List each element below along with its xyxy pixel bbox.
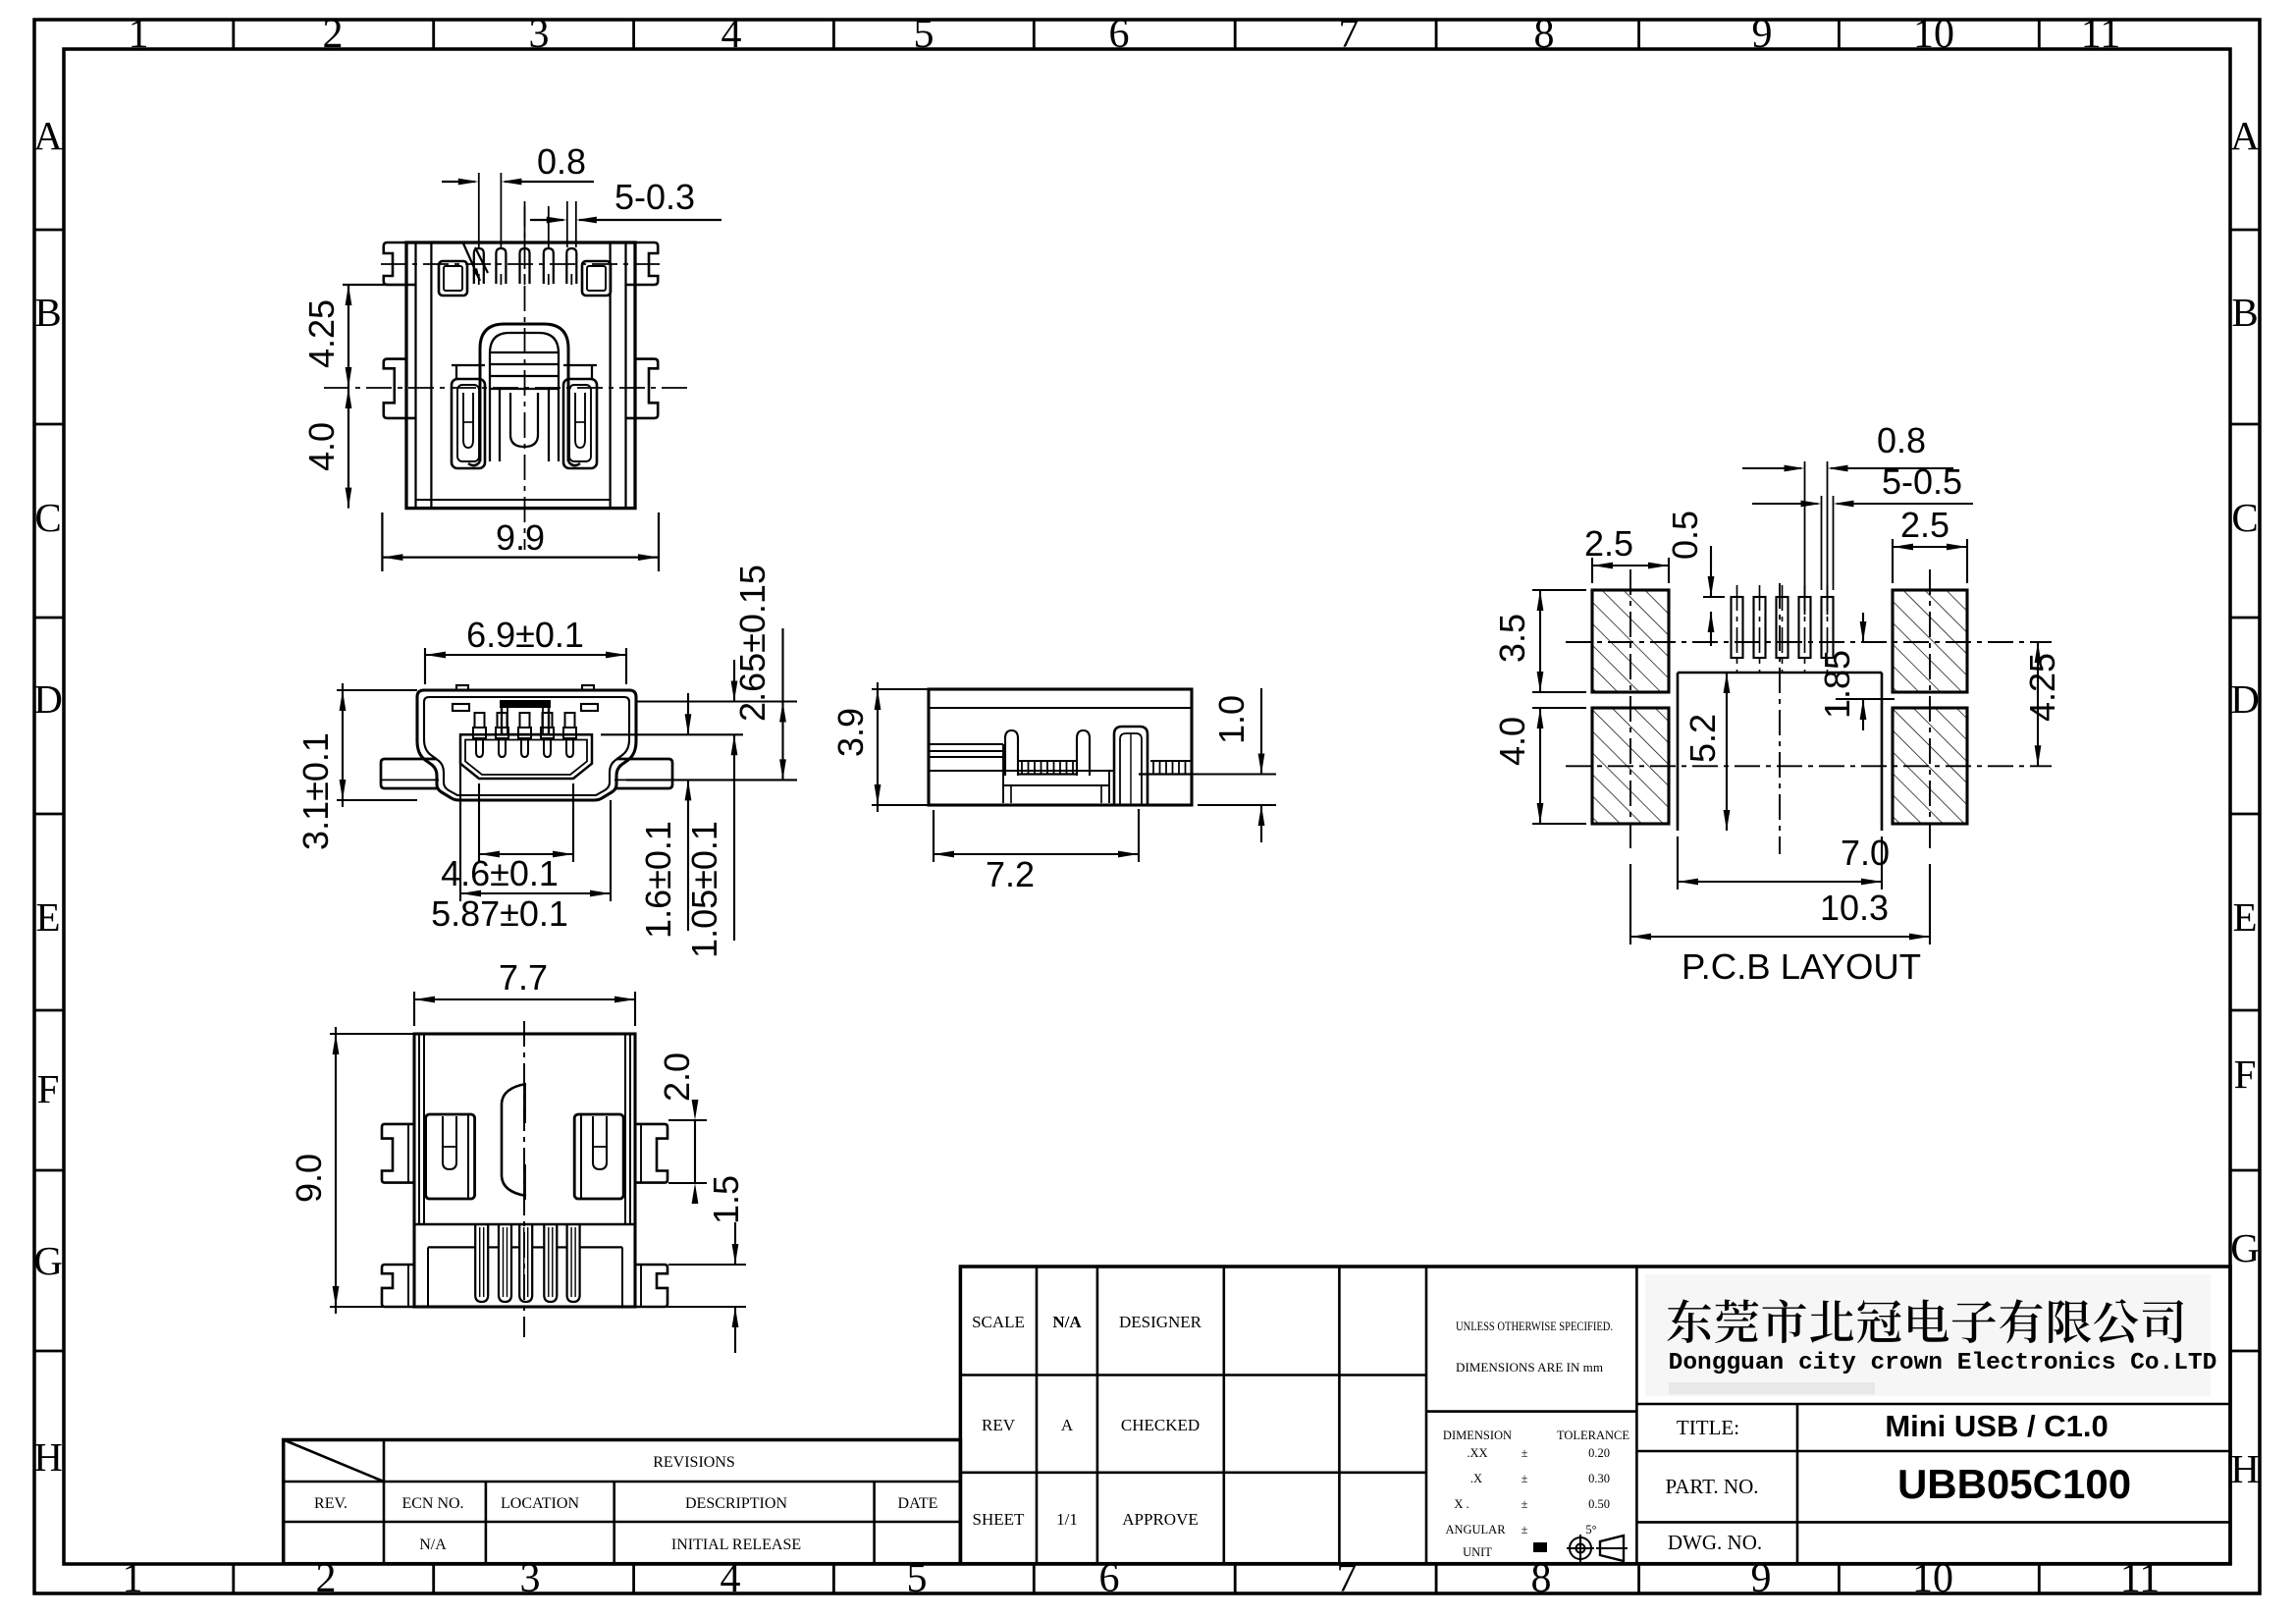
svg-text:8: 8 bbox=[1534, 12, 1555, 57]
svg-text:F: F bbox=[37, 1066, 60, 1111]
svg-text:DWG. NO.: DWG. NO. bbox=[1668, 1531, 1762, 1554]
svg-text:A: A bbox=[1061, 1416, 1074, 1434]
svg-text:APPROVE: APPROVE bbox=[1122, 1510, 1198, 1529]
svg-text:A: A bbox=[2230, 113, 2260, 158]
svg-text:7.7: 7.7 bbox=[499, 957, 548, 998]
svg-text:0.30: 0.30 bbox=[1588, 1472, 1610, 1485]
svg-text:4.25: 4.25 bbox=[2022, 653, 2062, 722]
svg-text:3.9: 3.9 bbox=[830, 708, 871, 757]
svg-text:D: D bbox=[33, 676, 63, 722]
svg-text:DESIGNER: DESIGNER bbox=[1119, 1313, 1202, 1331]
svg-text:TOLERANCE: TOLERANCE bbox=[1557, 1429, 1629, 1442]
svg-text:DESCRIPTION: DESCRIPTION bbox=[685, 1495, 787, 1512]
svg-text:C: C bbox=[34, 495, 61, 540]
svg-text:CHECKED: CHECKED bbox=[1121, 1416, 1200, 1434]
svg-text:SHEET: SHEET bbox=[973, 1510, 1026, 1529]
svg-text:7.0: 7.0 bbox=[1841, 833, 1890, 873]
svg-text:DATE: DATE bbox=[898, 1495, 938, 1512]
svg-text:LOCATION: LOCATION bbox=[501, 1495, 579, 1512]
svg-text:3.5: 3.5 bbox=[1492, 614, 1532, 663]
svg-text:UBB05C100: UBB05C100 bbox=[1897, 1461, 2131, 1507]
svg-text:4.0: 4.0 bbox=[301, 422, 342, 471]
svg-text:1.5: 1.5 bbox=[706, 1175, 746, 1224]
svg-text:G: G bbox=[33, 1238, 63, 1283]
svg-text:N/A: N/A bbox=[1052, 1313, 1082, 1331]
svg-text:F: F bbox=[2234, 1052, 2257, 1097]
svg-text:N/A: N/A bbox=[419, 1537, 447, 1553]
svg-text:1/1: 1/1 bbox=[1056, 1510, 1078, 1529]
svg-text:2.5: 2.5 bbox=[1584, 523, 1633, 564]
svg-text:E: E bbox=[35, 894, 60, 940]
svg-text:3.1±0.1: 3.1±0.1 bbox=[295, 732, 336, 850]
svg-text:0.5: 0.5 bbox=[1665, 511, 1705, 560]
svg-text:UNIT: UNIT bbox=[1463, 1545, 1492, 1559]
svg-text:0.20: 0.20 bbox=[1588, 1446, 1610, 1460]
svg-text:1.05±0.1: 1.05±0.1 bbox=[684, 821, 724, 958]
svg-text:2: 2 bbox=[323, 12, 344, 57]
svg-text:5: 5 bbox=[914, 12, 934, 57]
svg-text:UNLESS OTHERWISE SPECIFIED.: UNLESS OTHERWISE SPECIFIED. bbox=[1456, 1320, 1613, 1333]
svg-text:DIMENSION: DIMENSION bbox=[1443, 1429, 1512, 1442]
svg-text:5.87±0.1: 5.87±0.1 bbox=[431, 893, 568, 934]
svg-text:DIMENSIONS ARE IN mm: DIMENSIONS ARE IN mm bbox=[1456, 1361, 1603, 1375]
svg-text:1.85: 1.85 bbox=[1817, 650, 1857, 719]
svg-text:REVISIONS: REVISIONS bbox=[653, 1454, 735, 1471]
svg-text:4.25: 4.25 bbox=[301, 299, 342, 368]
svg-text:A: A bbox=[33, 113, 63, 158]
svg-text:6: 6 bbox=[1109, 12, 1130, 57]
svg-text:PART. NO.: PART. NO. bbox=[1665, 1475, 1758, 1498]
svg-text:9.0: 9.0 bbox=[289, 1154, 329, 1203]
svg-text:B: B bbox=[2231, 290, 2258, 335]
svg-text:5-0.5: 5-0.5 bbox=[1882, 461, 1962, 502]
svg-text:REV: REV bbox=[982, 1416, 1016, 1434]
svg-text:C: C bbox=[2231, 495, 2258, 540]
svg-text:ECN NO.: ECN NO. bbox=[401, 1495, 463, 1512]
svg-text:Dongguan city crown Electronic: Dongguan city crown Electronics Co.LTD bbox=[1669, 1350, 2217, 1376]
svg-text:1.0: 1.0 bbox=[1211, 695, 1252, 744]
svg-text:.X: .X bbox=[1470, 1472, 1482, 1485]
svg-text:B: B bbox=[34, 290, 61, 335]
svg-text:±: ± bbox=[1522, 1497, 1528, 1511]
svg-text:4.0: 4.0 bbox=[1492, 717, 1532, 766]
svg-text:±: ± bbox=[1522, 1472, 1528, 1485]
svg-text:E: E bbox=[2232, 894, 2257, 940]
svg-text:10: 10 bbox=[1913, 12, 1954, 57]
svg-text:7.2: 7.2 bbox=[986, 854, 1035, 894]
svg-text:2.5: 2.5 bbox=[1900, 505, 1949, 545]
svg-text:5°: 5° bbox=[1585, 1523, 1596, 1537]
svg-text:5.2: 5.2 bbox=[1682, 714, 1723, 763]
svg-text:X .: X . bbox=[1454, 1497, 1468, 1511]
svg-text:3: 3 bbox=[529, 12, 550, 57]
svg-text:5-0.3: 5-0.3 bbox=[614, 177, 695, 217]
svg-text:2.65±0.15: 2.65±0.15 bbox=[732, 565, 773, 722]
svg-text:P.C.B LAYOUT: P.C.B LAYOUT bbox=[1682, 946, 1921, 987]
svg-text:±: ± bbox=[1522, 1523, 1528, 1537]
svg-text:1: 1 bbox=[123, 1556, 143, 1601]
svg-text:0.8: 0.8 bbox=[1877, 420, 1926, 460]
svg-text:H: H bbox=[2230, 1446, 2260, 1491]
svg-text:.XX: .XX bbox=[1467, 1446, 1487, 1460]
svg-text:REV.: REV. bbox=[314, 1495, 347, 1512]
svg-text:6.9±0.1: 6.9±0.1 bbox=[466, 615, 584, 655]
svg-text:9: 9 bbox=[1752, 12, 1773, 57]
svg-text:11: 11 bbox=[2081, 12, 2120, 57]
svg-text:G: G bbox=[2230, 1225, 2260, 1270]
svg-text:TITLE:: TITLE: bbox=[1677, 1416, 1739, 1439]
svg-text:1: 1 bbox=[129, 12, 149, 57]
svg-text:0.50: 0.50 bbox=[1588, 1497, 1610, 1511]
svg-text:INITIAL RELEASE: INITIAL RELEASE bbox=[671, 1537, 801, 1553]
svg-text:0.8: 0.8 bbox=[537, 141, 586, 182]
svg-text:1.6±0.1: 1.6±0.1 bbox=[638, 821, 678, 939]
svg-text:4: 4 bbox=[721, 12, 742, 57]
svg-text:SCALE: SCALE bbox=[972, 1313, 1025, 1331]
svg-text:Mini USB / C1.0: Mini USB / C1.0 bbox=[1885, 1409, 2108, 1443]
svg-text:±: ± bbox=[1522, 1446, 1528, 1460]
svg-text:4.6±0.1: 4.6±0.1 bbox=[441, 853, 559, 893]
svg-text:D: D bbox=[2230, 676, 2260, 722]
svg-text:ANGULAR: ANGULAR bbox=[1445, 1523, 1506, 1537]
svg-text:10.3: 10.3 bbox=[1820, 888, 1889, 928]
svg-text:H: H bbox=[33, 1434, 63, 1480]
svg-text:2.0: 2.0 bbox=[657, 1052, 697, 1102]
svg-text:7: 7 bbox=[1339, 12, 1360, 57]
svg-text:9.9: 9.9 bbox=[496, 517, 545, 558]
